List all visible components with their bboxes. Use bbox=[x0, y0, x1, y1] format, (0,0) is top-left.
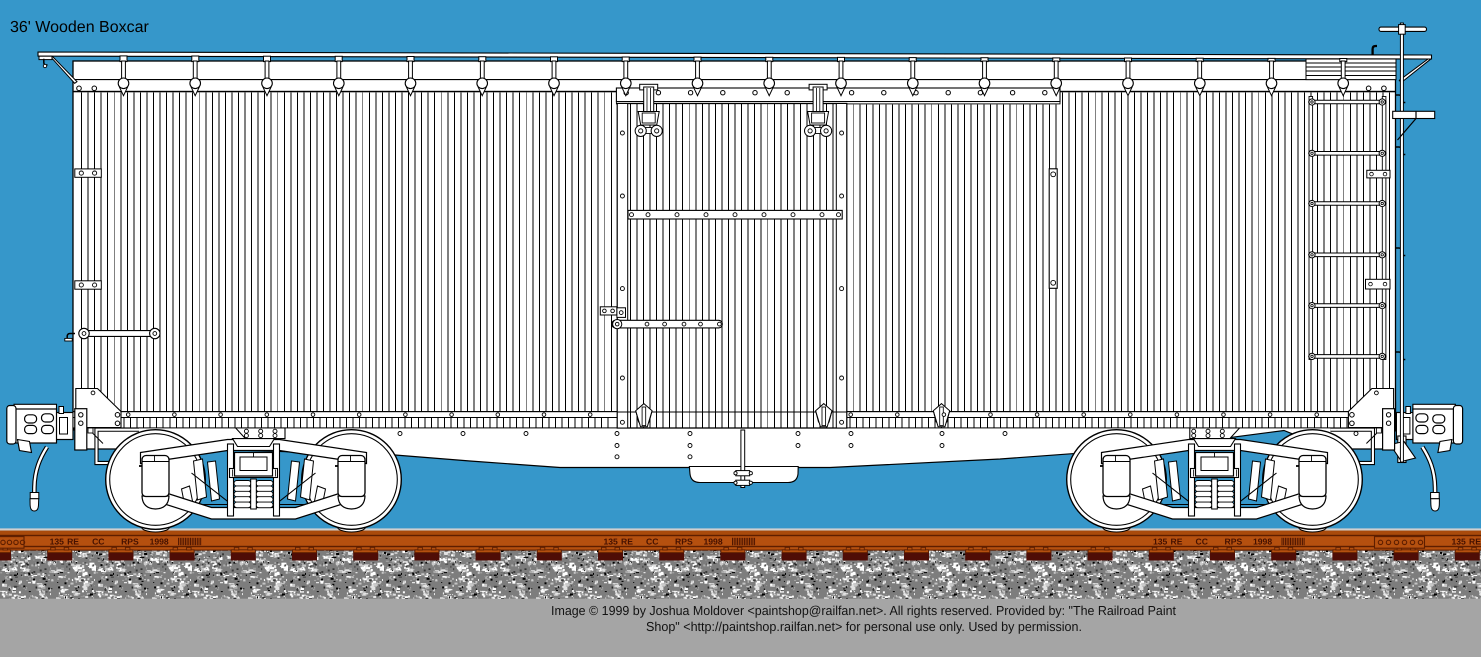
svg-text:CC: CC bbox=[646, 537, 658, 547]
svg-text:36' Wooden Boxcar: 36' Wooden Boxcar bbox=[10, 19, 150, 36]
svg-text:Image © 1999 by Joshua Moldove: Image © 1999 by Joshua Moldover <paintsh… bbox=[551, 603, 1176, 618]
svg-text:135: 135 bbox=[1153, 537, 1168, 547]
svg-text:135: 135 bbox=[50, 537, 65, 547]
svg-text:RE: RE bbox=[1469, 537, 1481, 547]
svg-text:RE: RE bbox=[67, 537, 79, 547]
svg-text:RPS: RPS bbox=[675, 537, 693, 547]
svg-text:RE: RE bbox=[1171, 537, 1183, 547]
svg-text:RPS: RPS bbox=[121, 537, 139, 547]
svg-text:1998: 1998 bbox=[150, 537, 169, 547]
svg-text:135: 135 bbox=[1452, 537, 1467, 547]
svg-text:135: 135 bbox=[604, 537, 619, 547]
svg-text:RPS: RPS bbox=[1225, 537, 1243, 547]
svg-text:1998: 1998 bbox=[1253, 537, 1272, 547]
svg-text:CC: CC bbox=[92, 537, 104, 547]
svg-text:Shop" <http://paintshop.railfa: Shop" <http://paintshop.railfan.net> for… bbox=[646, 619, 1082, 634]
svg-text:CC: CC bbox=[1196, 537, 1208, 547]
svg-text:1998: 1998 bbox=[704, 537, 723, 547]
svg-text:RE: RE bbox=[621, 537, 633, 547]
